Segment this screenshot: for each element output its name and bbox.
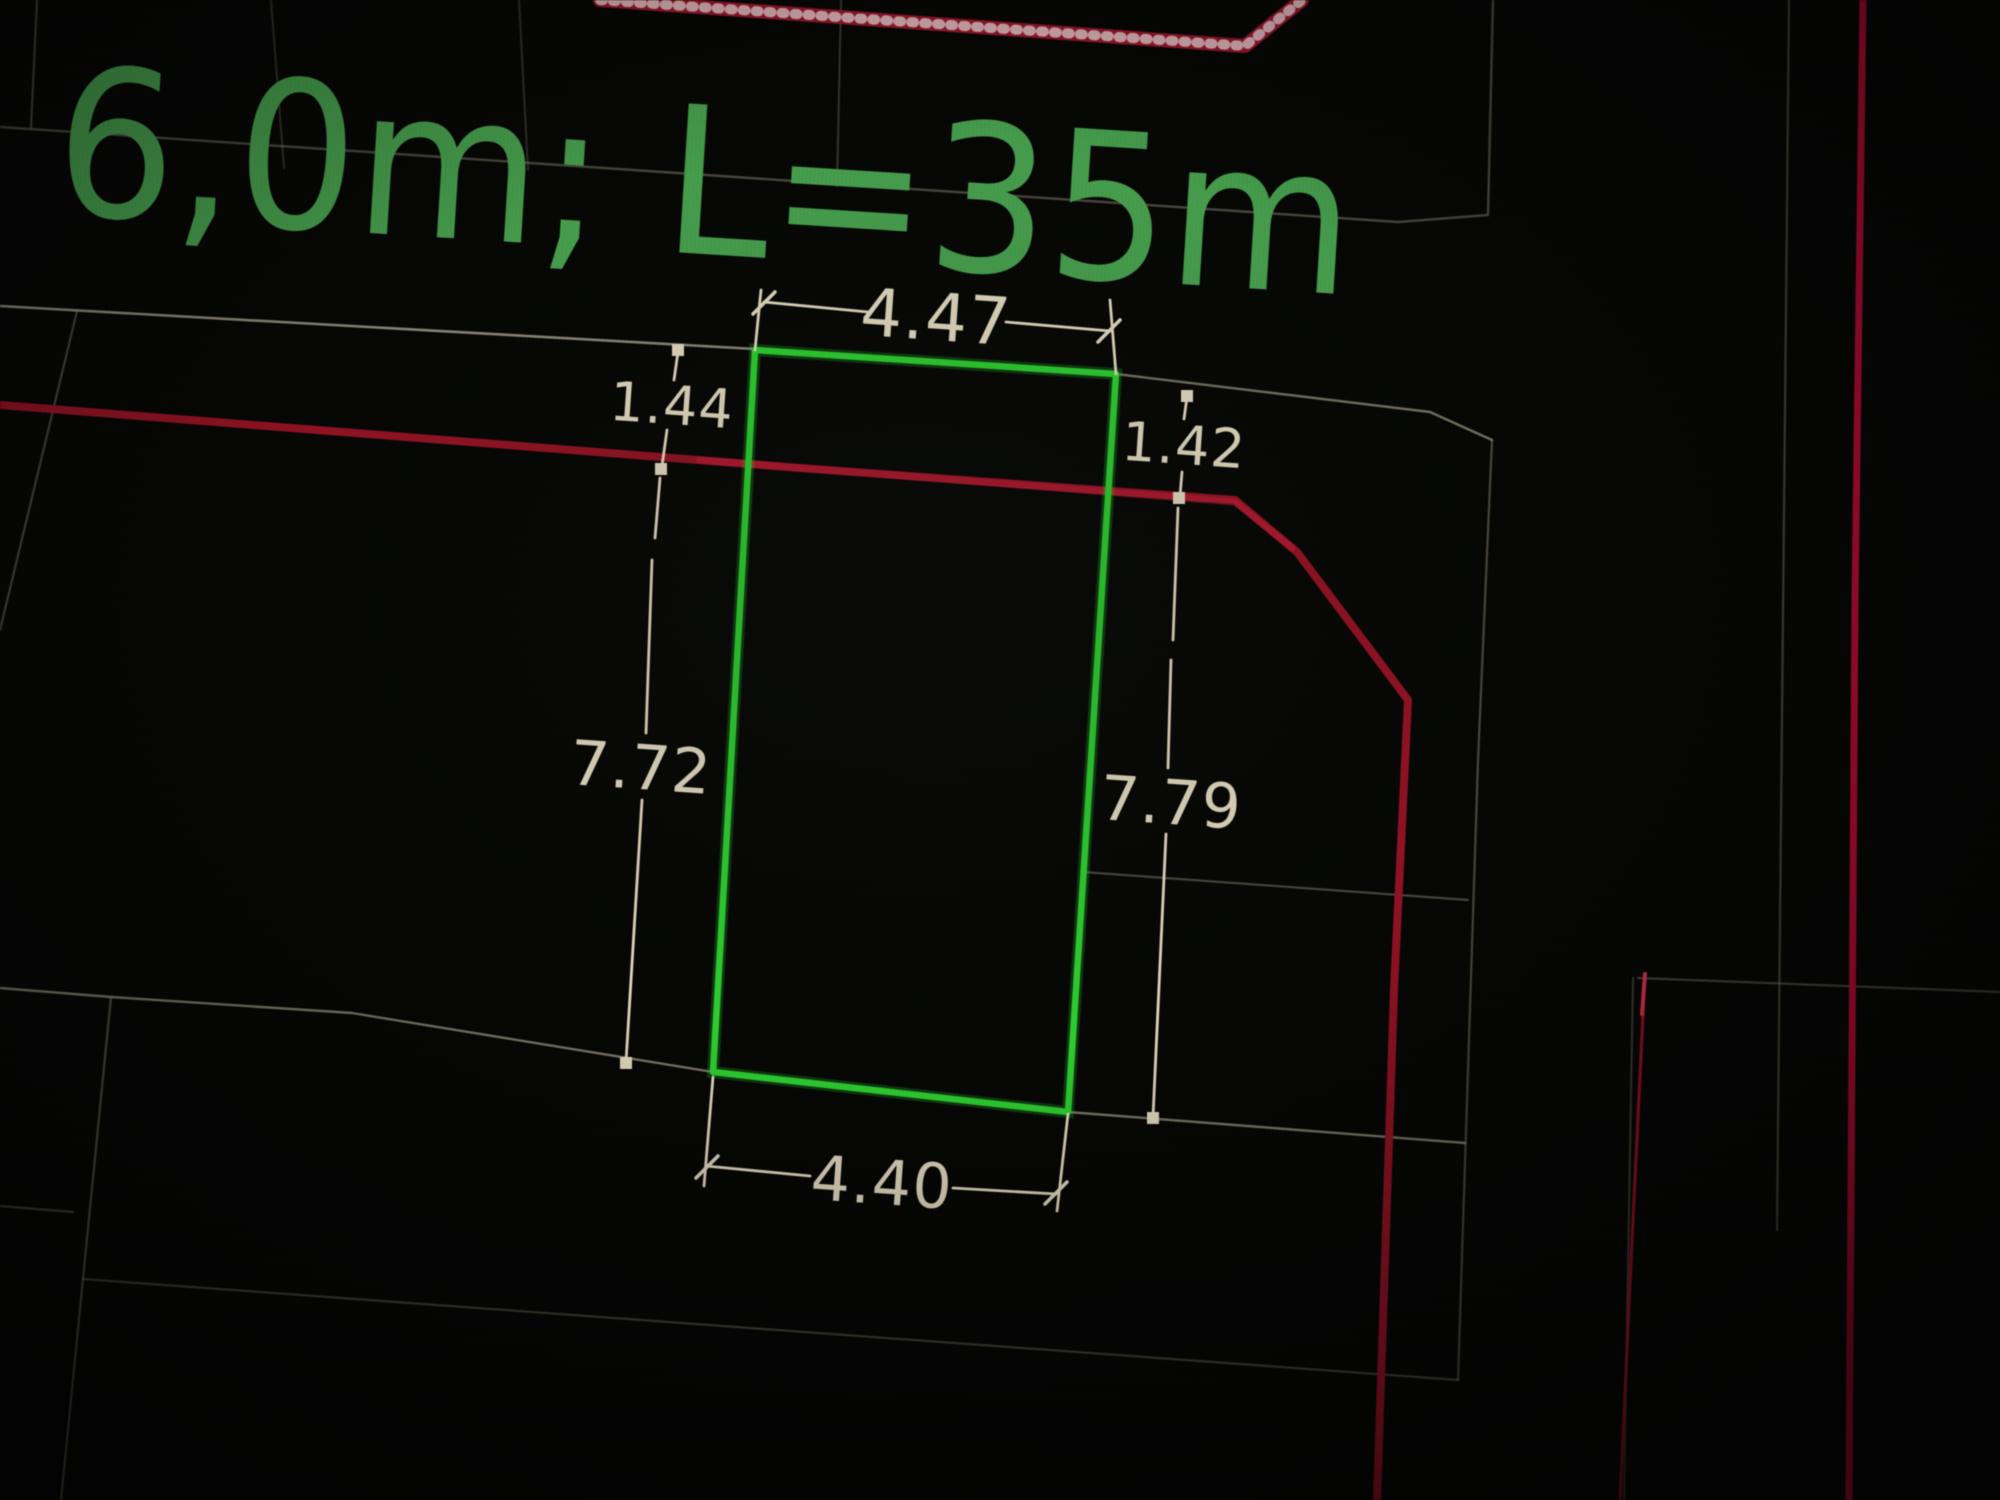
parcel-tall-right-vertical xyxy=(1777,0,1789,1230)
parcel-stub-1 xyxy=(31,0,37,128)
right-boundary-line xyxy=(1849,0,1863,1500)
dim-label-depth-right: 7.79 xyxy=(1097,761,1244,844)
dim-right-node-bottom xyxy=(1147,1112,1159,1124)
dim-left-ext-e xyxy=(626,800,642,1062)
parcel-mid-split xyxy=(1083,872,1468,900)
dim-left-node-top xyxy=(672,344,684,356)
dim-bottom-line-right xyxy=(953,1188,1056,1194)
parcel-left-vertical xyxy=(0,311,77,630)
parcel-rear-stub xyxy=(0,1206,73,1212)
dim-right-node-mid xyxy=(1173,492,1185,504)
cad-screen-photo: 4.47 1.44 1.42 7.72 7.79 4.40 6,0m; L=35… xyxy=(0,0,2000,1500)
annotation-label: 6,0m; L=35m xyxy=(49,24,1361,343)
dim-right-ext-c xyxy=(1173,508,1178,640)
dim-label-depth-left: 7.72 xyxy=(567,726,714,809)
dim-bottom-ext-right xyxy=(1057,1114,1068,1211)
dim-label-front-offset-left: 1.44 xyxy=(608,370,736,442)
dim-left-ext-d xyxy=(646,560,652,733)
cad-canvas: 4.47 1.44 1.42 7.72 7.79 4.40 6,0m; L=35… xyxy=(0,0,2000,1500)
dim-left-node-bottom xyxy=(620,1057,632,1069)
parcel-right-side xyxy=(1458,440,1492,1380)
dim-right-node-top xyxy=(1181,390,1193,402)
parcel-rear-vertical xyxy=(61,997,111,1500)
dim-left-node-mid xyxy=(655,463,667,475)
parcel-bottom-long xyxy=(83,1279,1458,1380)
parcel-rear-line xyxy=(0,988,1465,1143)
main-boundary-line xyxy=(0,405,1408,1500)
dim-left-ext-c xyxy=(655,478,660,538)
dim-right-ext-d xyxy=(1168,660,1171,768)
parcel-right-horizontal xyxy=(1638,978,2000,992)
parcel-front-line xyxy=(0,306,755,349)
dim-label-front-offset-right: 1.42 xyxy=(1120,410,1248,482)
dim-bottom-line-left xyxy=(706,1166,810,1176)
dimension-labels: 4.47 1.44 1.42 7.72 7.79 4.40 xyxy=(567,274,1248,1224)
dim-label-bottom-width: 4.40 xyxy=(808,1141,955,1224)
hatched-boundary-ties xyxy=(600,0,1302,46)
